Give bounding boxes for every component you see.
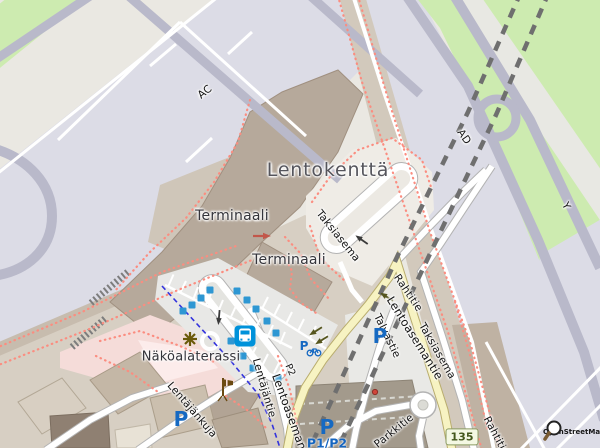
- osm-logo-icon: [543, 420, 563, 442]
- viewpoint-icon: [183, 332, 197, 346]
- route-shield: 135: [446, 428, 479, 445]
- mini-roundabout: [202, 333, 218, 349]
- parking-p1p2-label: P1/P2: [307, 436, 347, 448]
- bicycle-parking-label: P: [300, 340, 309, 352]
- map-tile-art: [0, 0, 600, 448]
- bus-station-icon: [235, 326, 256, 347]
- roundabout: [410, 392, 436, 418]
- map-canvas[interactable]: Lentokenttä Terminaali Terminaali Näköal…: [0, 0, 600, 448]
- osm-attribution[interactable]: OpenStreetMap: [543, 420, 599, 444]
- poi-dot: [372, 389, 377, 394]
- parking-icon: P: [174, 409, 189, 429]
- parking-icon: P: [320, 417, 335, 437]
- parking-icon: P: [373, 326, 388, 346]
